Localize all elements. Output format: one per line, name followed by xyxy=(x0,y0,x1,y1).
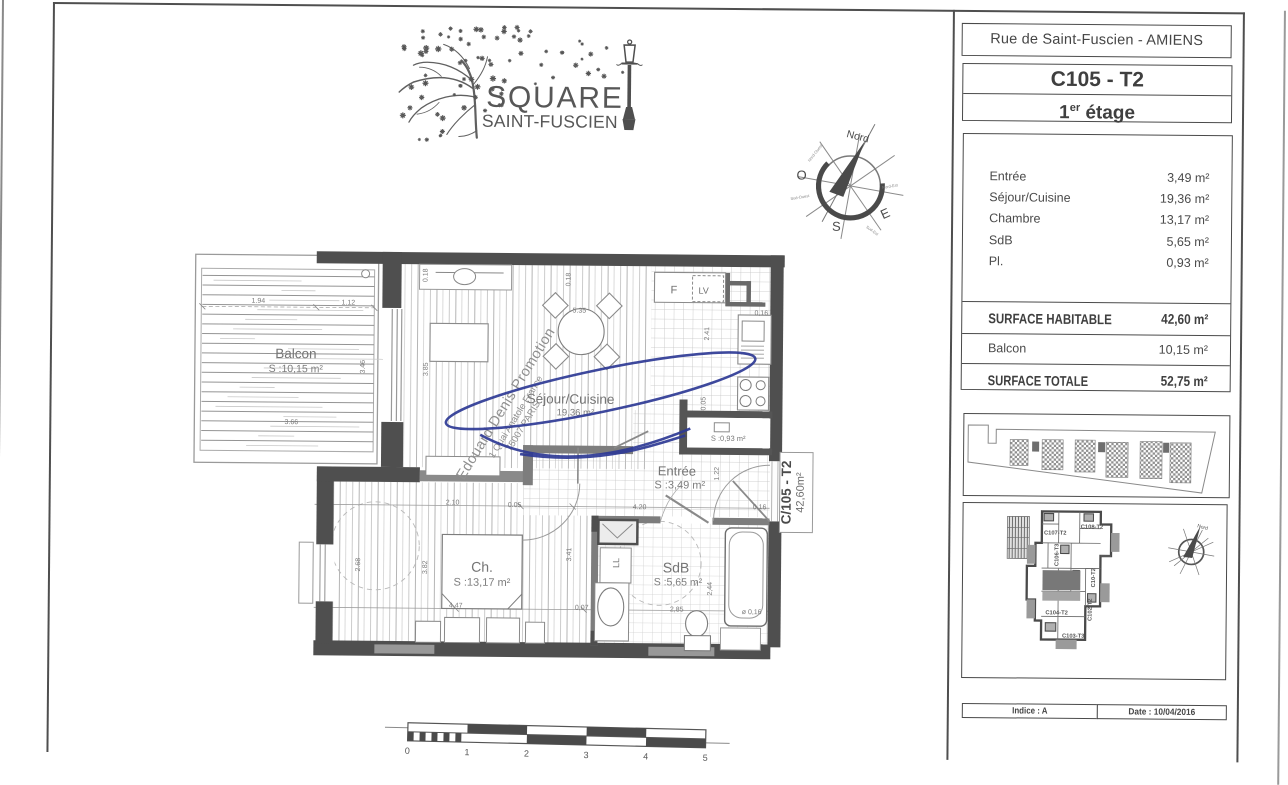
svg-text:5.35: 5.35 xyxy=(572,308,586,315)
svg-text:2: 2 xyxy=(524,749,529,759)
svg-text:3.82: 3.82 xyxy=(422,560,429,574)
svg-text:S :10,15 m²: S :10,15 m² xyxy=(269,363,324,375)
svg-text:O: O xyxy=(796,167,806,182)
svg-text:3.85: 3.85 xyxy=(423,362,430,376)
svg-text:4.20: 4.20 xyxy=(633,504,647,511)
svg-text:4: 4 xyxy=(643,751,648,761)
svg-text:1.94: 1.94 xyxy=(252,298,266,305)
svg-text:LL: LL xyxy=(611,558,621,568)
svg-text:4.47: 4.47 xyxy=(449,602,463,609)
svg-text:C108-T2: C108-T2 xyxy=(1081,524,1103,530)
svg-text:0: 0 xyxy=(405,746,410,756)
svg-text:3: 3 xyxy=(583,750,588,760)
svg-text:5: 5 xyxy=(703,753,708,763)
svg-text:1.22: 1.22 xyxy=(714,467,721,481)
svg-text:Balcon: Balcon xyxy=(275,346,316,361)
svg-text:C106-T3: C106-T3 xyxy=(1054,544,1060,566)
svg-text:0.18: 0.18 xyxy=(423,268,430,282)
svg-text:2.68: 2.68 xyxy=(355,558,362,572)
svg-text:Sud-Ouest: Sud-Ouest xyxy=(790,193,811,201)
svg-text:Entrée: Entrée xyxy=(658,463,696,478)
svg-text:S :5,65 m²: S :5,65 m² xyxy=(654,576,703,588)
svg-text:SAINT-FUSCIEN: SAINT-FUSCIEN xyxy=(482,111,618,132)
svg-text:3.46: 3.46 xyxy=(360,360,367,374)
svg-text:S: S xyxy=(832,219,841,234)
svg-text:S :13,17 m²: S :13,17 m² xyxy=(453,577,510,589)
svg-text:1.12: 1.12 xyxy=(342,300,356,307)
svg-text:2.41: 2.41 xyxy=(704,327,711,341)
svg-text:0.18: 0.18 xyxy=(566,273,573,287)
svg-text:2,85: 2,85 xyxy=(670,606,684,613)
svg-text:C102-T2: C102-T2 xyxy=(1088,599,1094,621)
svg-text:S :3,49 m²: S :3,49 m² xyxy=(654,479,705,491)
svg-text:Nord: Nord xyxy=(845,128,870,145)
svg-text:SQUARE: SQUARE xyxy=(486,81,624,115)
svg-text:SdB: SdB xyxy=(663,559,690,575)
svg-text:C107-T2: C107-T2 xyxy=(1044,530,1066,536)
svg-text:0.16: 0.16 xyxy=(753,504,767,511)
svg-text:1: 1 xyxy=(464,747,469,757)
svg-text:42,60m²: 42,60m² xyxy=(795,472,807,513)
svg-text:0.05: 0.05 xyxy=(508,502,522,509)
svg-text:2.10: 2.10 xyxy=(446,499,460,506)
svg-text:LV: LV xyxy=(698,286,708,296)
svg-text:F: F xyxy=(670,284,677,296)
svg-text:E: E xyxy=(878,205,892,222)
svg-text:Nord-Ouest: Nord-Ouest xyxy=(807,143,824,163)
svg-text:3.66: 3.66 xyxy=(284,419,298,426)
svg-text:0.05: 0.05 xyxy=(700,397,707,411)
svg-text:S :0,93 m²: S :0,93 m² xyxy=(711,434,746,443)
svg-text:C103-T3: C103-T3 xyxy=(1062,634,1084,640)
svg-text:C/105 - T2: C/105 - T2 xyxy=(778,460,794,524)
svg-text:0,07: 0,07 xyxy=(575,605,589,612)
svg-text:3.41: 3.41 xyxy=(566,548,573,562)
svg-text:0,16: 0,16 xyxy=(754,310,768,317)
svg-text:C10-T2: C10-T2 xyxy=(1091,568,1097,587)
svg-text:2,44: 2,44 xyxy=(707,582,714,596)
svg-text:ø 0,16: ø 0,16 xyxy=(742,609,762,616)
svg-text:Ch.: Ch. xyxy=(471,559,493,575)
svg-text:C104-T2: C104-T2 xyxy=(1045,610,1067,616)
